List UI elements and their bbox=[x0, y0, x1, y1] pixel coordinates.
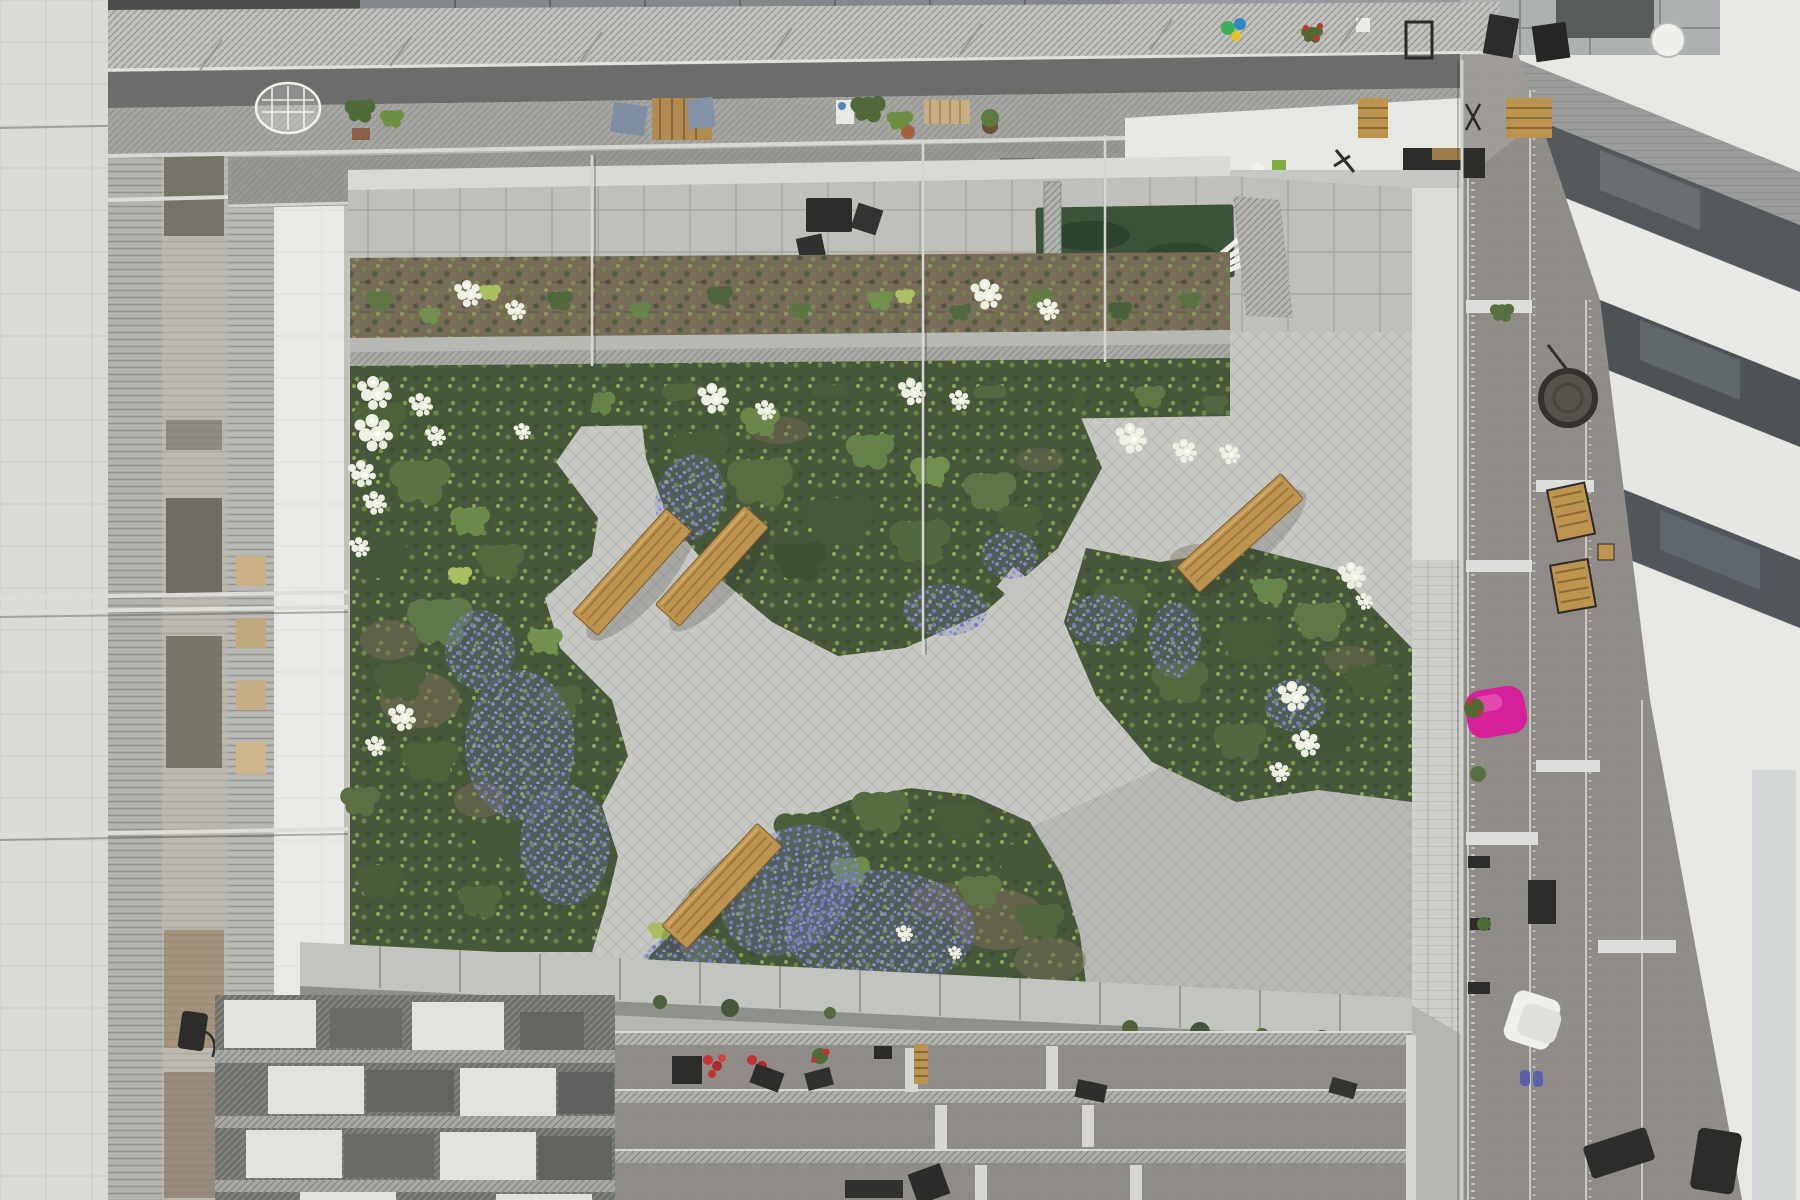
courtyard-photo bbox=[0, 0, 1800, 1200]
photo-stage bbox=[0, 0, 1800, 1200]
